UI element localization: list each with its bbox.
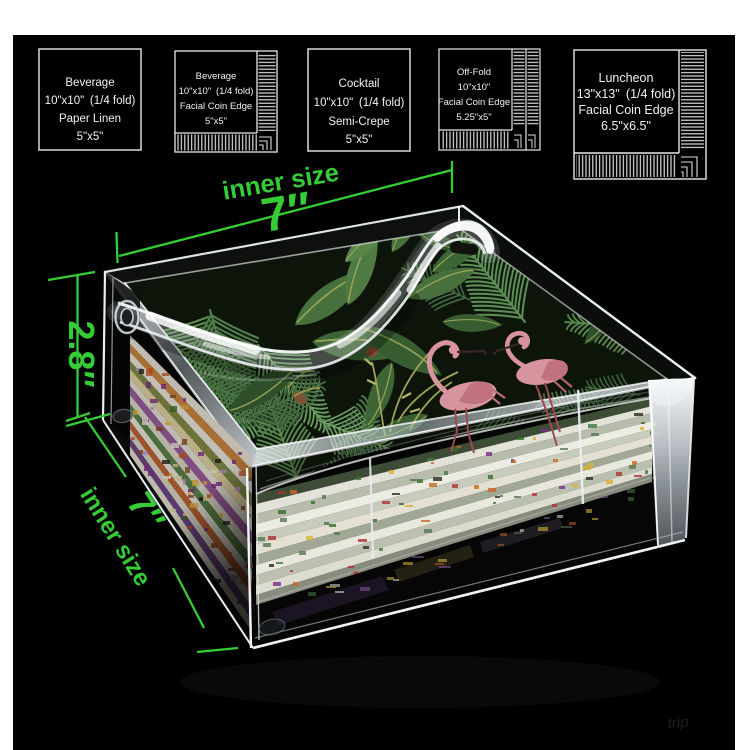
svg-text:trip: trip	[667, 714, 689, 732]
svg-text:Facial Coin Edge: Facial Coin Edge	[578, 103, 673, 117]
svg-text:10"x10" (1/4 fold): 10"x10" (1/4 fold)	[45, 95, 136, 107]
svg-text:10"x10" (1/4 fold): 10"x10" (1/4 fold)	[179, 86, 254, 97]
svg-text:Semi-Crepe: Semi-Crepe	[328, 116, 389, 128]
svg-text:5.25"x5": 5.25"x5"	[456, 112, 491, 123]
svg-text:5"x5": 5"x5"	[205, 116, 227, 127]
svg-text:6.5"x6.5": 6.5"x6.5"	[601, 119, 651, 133]
svg-text:Facial Coin Edge: Facial Coin Edge	[438, 97, 510, 108]
svg-text:5"x5": 5"x5"	[77, 131, 104, 143]
svg-text:10"x10" (1/4 fold): 10"x10" (1/4 fold)	[314, 97, 405, 109]
svg-text:Cocktail: Cocktail	[339, 78, 380, 90]
svg-text:5"x5": 5"x5"	[346, 134, 373, 146]
svg-text:10"x10": 10"x10"	[458, 82, 491, 93]
svg-text:Off-Fold: Off-Fold	[457, 67, 491, 78]
svg-text:13"x13" (1/4 fold): 13"x13" (1/4 fold)	[577, 87, 676, 101]
svg-text:7″: 7″	[258, 182, 316, 242]
svg-text:Facial Coin Edge: Facial Coin Edge	[180, 101, 252, 112]
svg-text:Beverage: Beverage	[196, 71, 237, 82]
svg-text:Beverage: Beverage	[65, 77, 114, 89]
svg-text:2.8″: 2.8″	[61, 320, 102, 387]
svg-text:Paper Linen: Paper Linen	[59, 113, 121, 125]
svg-text:Luncheon: Luncheon	[599, 71, 654, 85]
